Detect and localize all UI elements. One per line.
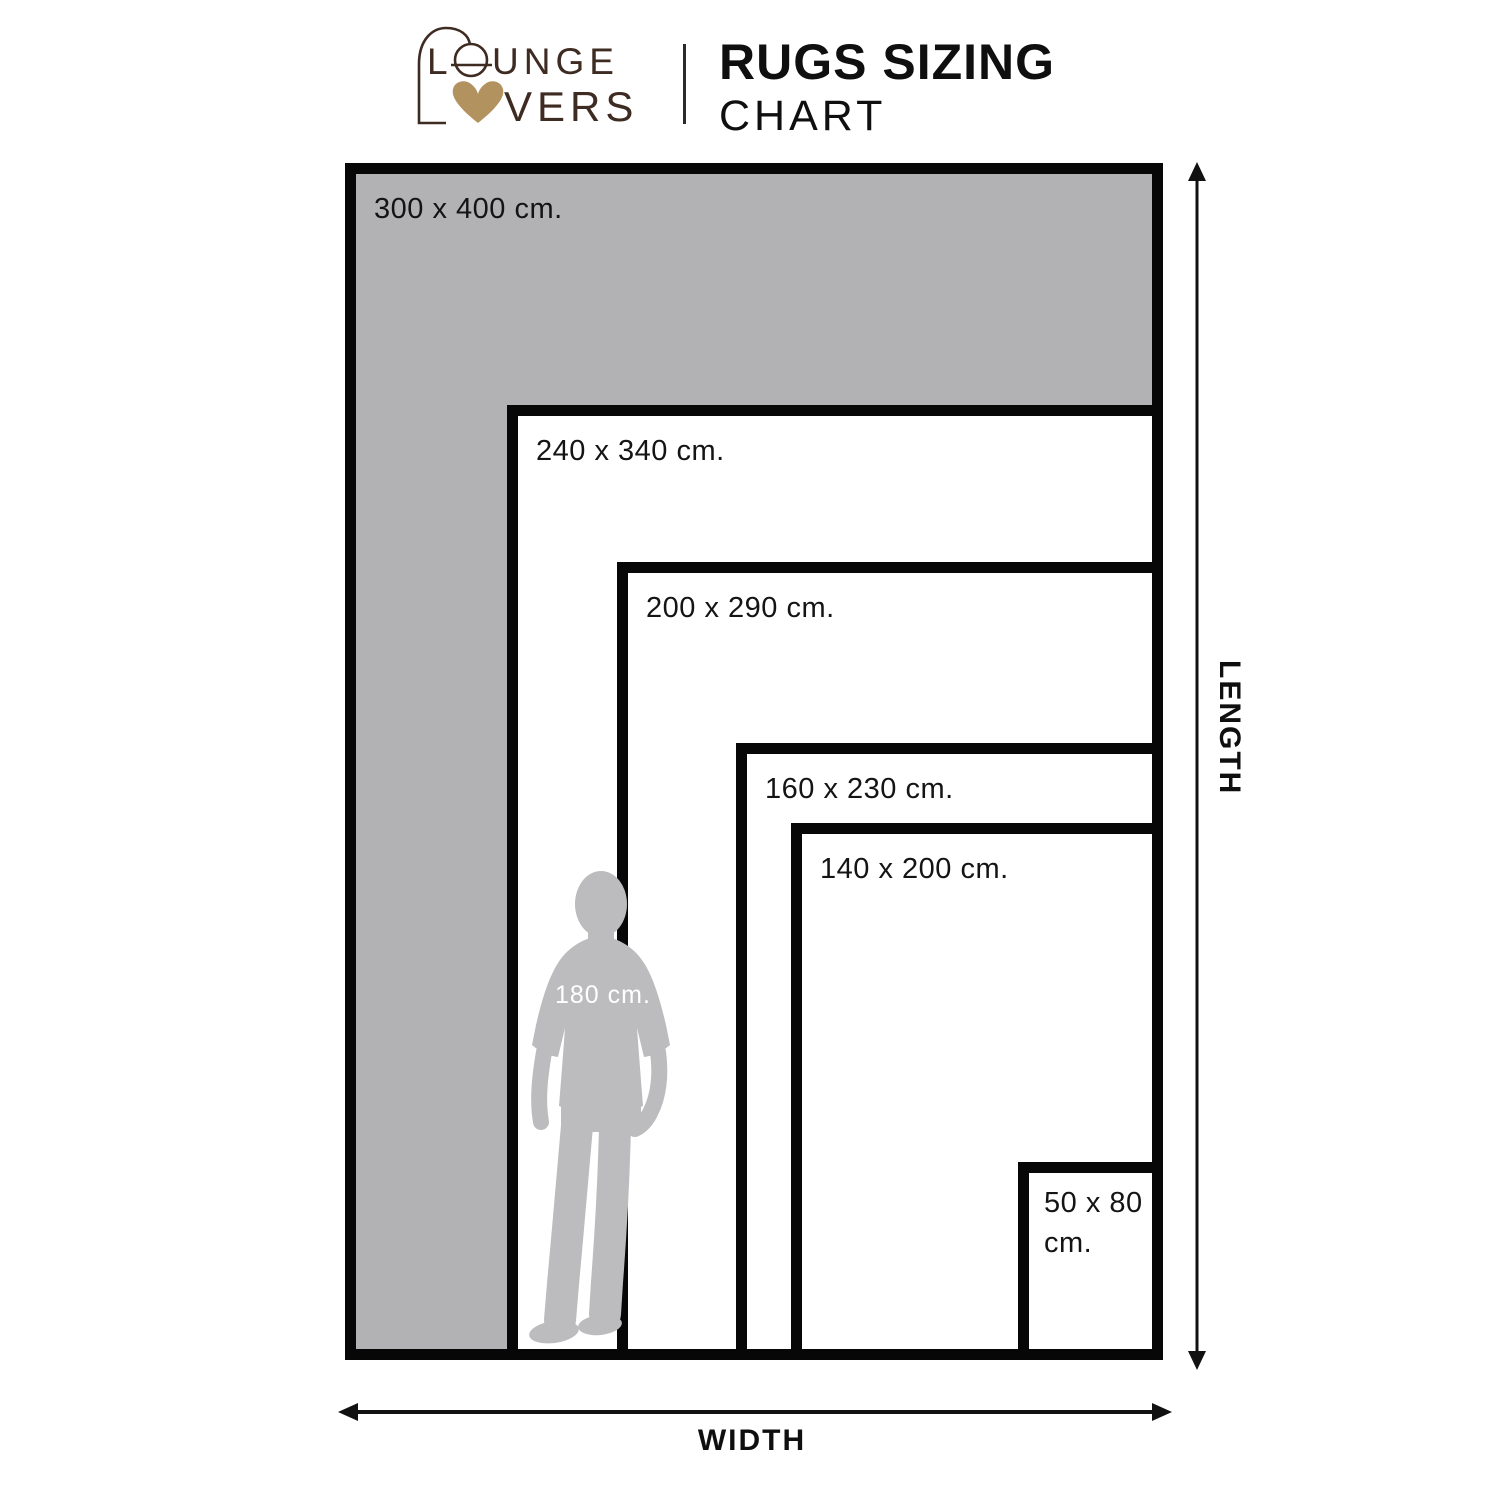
rug-size-label: 200 x 290 cm.: [628, 573, 1152, 628]
person-height-label: 180 cm.: [555, 981, 651, 1009]
rug-size-label: 300 x 400 cm.: [356, 174, 1152, 229]
rug-sizing-chart: L UNGE VERS RUGS SIZING CHART 300 x 400 …: [0, 0, 1500, 1500]
rug-size-label: 240 x 340 cm.: [518, 416, 1152, 471]
rug-size-label: 50 x 80 cm.: [1029, 1173, 1152, 1263]
rug-size-label: 160 x 230 cm.: [747, 754, 1152, 809]
person-silhouette: 180 cm.: [513, 870, 677, 1350]
width-axis-label: WIDTH: [652, 1424, 852, 1458]
rug-diagram: 300 x 400 cm.240 x 340 cm.200 x 290 cm.1…: [0, 0, 1500, 1500]
rug-size-label: 140 x 200 cm.: [802, 834, 1152, 889]
rug-box-50x80: 50 x 80 cm.: [1018, 1162, 1163, 1360]
length-axis-label: LENGTH: [1212, 660, 1246, 795]
person-figure-icon: [528, 871, 670, 1346]
